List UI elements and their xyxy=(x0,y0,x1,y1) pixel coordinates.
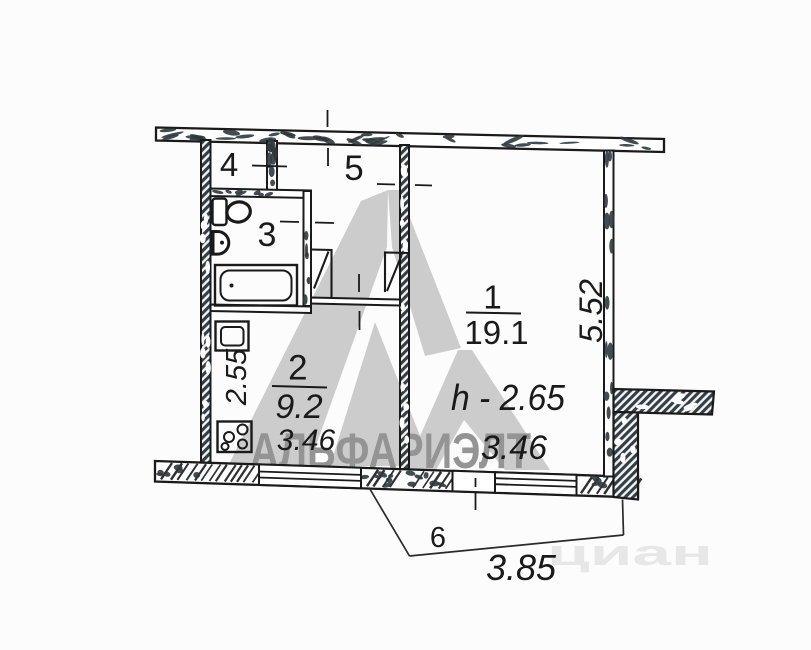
svg-text:2.55: 2.55 xyxy=(221,348,253,406)
svg-text:6: 6 xyxy=(430,522,446,554)
svg-text:19.1: 19.1 xyxy=(464,314,528,351)
svg-text:1: 1 xyxy=(483,279,501,316)
svg-text:4: 4 xyxy=(220,146,238,183)
svg-text:9.2: 9.2 xyxy=(275,388,322,426)
svg-text:h - 2.65: h - 2.65 xyxy=(451,377,566,418)
svg-text:3.85: 3.85 xyxy=(486,547,557,588)
svg-text:5: 5 xyxy=(344,149,363,188)
svg-text:5.52: 5.52 xyxy=(573,279,609,343)
svg-text:2: 2 xyxy=(288,349,307,388)
svg-text:3: 3 xyxy=(258,216,277,254)
svg-text:циан: циан xyxy=(547,532,713,573)
svg-text:3.46: 3.46 xyxy=(277,424,336,457)
svg-text:3.46: 3.46 xyxy=(481,429,547,467)
